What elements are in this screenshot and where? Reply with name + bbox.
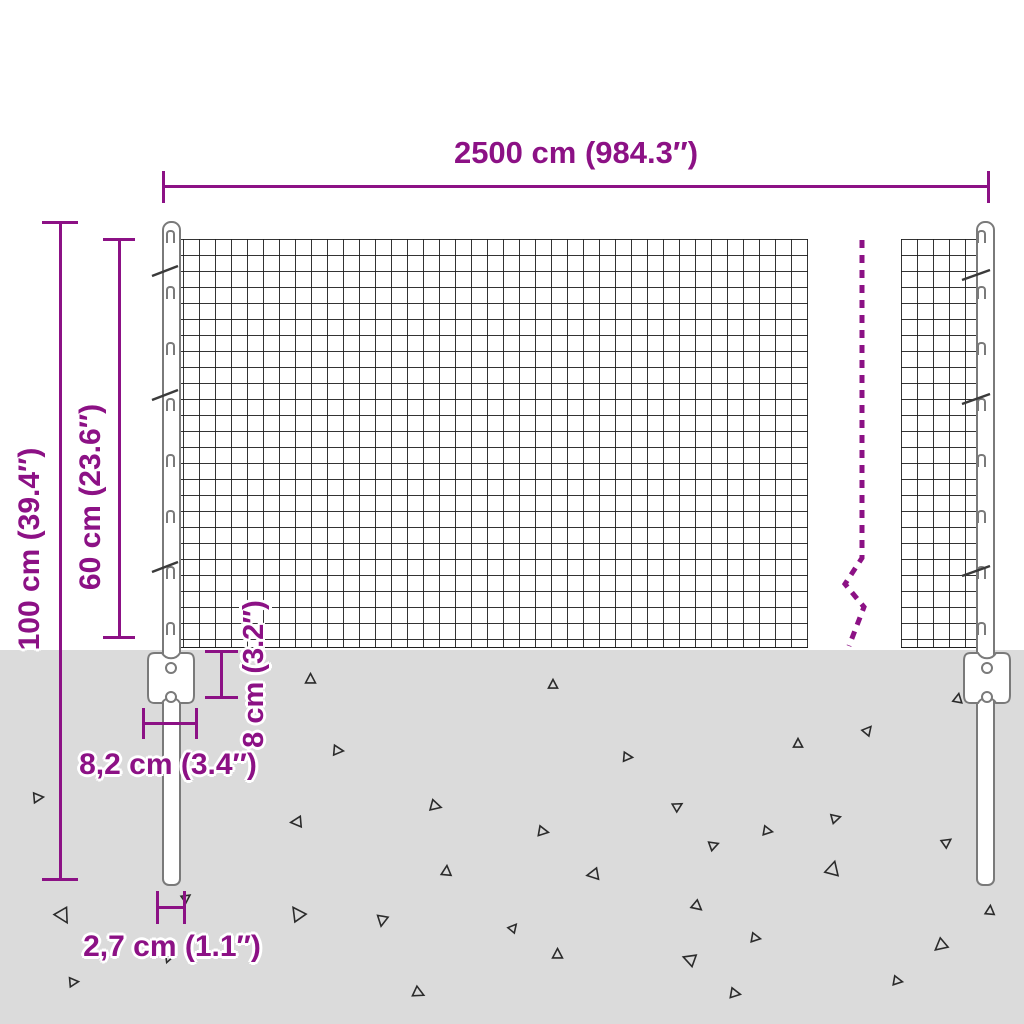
ground-triangle: [439, 863, 453, 877]
ground-triangle: [929, 935, 952, 958]
mesh-clip: [977, 398, 986, 411]
ground-triangle: [706, 837, 721, 852]
ground-triangle: [583, 865, 600, 882]
dimension-bracket-width-cap-right: [195, 708, 198, 739]
ground-triangle: [331, 743, 345, 757]
dimension-bracket-width-label: 8,2 cm (3.4″): [8, 746, 328, 784]
mesh-clip: [977, 566, 986, 579]
ground-triangle: [983, 903, 996, 916]
ground-triangle: [535, 823, 550, 838]
mesh-clip: [166, 398, 175, 411]
ground-triangle: [31, 790, 45, 804]
mesh-clip: [166, 454, 175, 467]
dimension-post-diameter-label: 2,7 cm (1.1″): [12, 928, 332, 966]
fence-dimension-diagram: 2500 cm (984.3″) 100 cm (39.4″) 60 cm (2…: [0, 0, 1024, 1024]
ground-triangle: [427, 797, 444, 814]
fence-post-right: [976, 221, 995, 886]
ground-triangle: [547, 678, 559, 690]
dimension-mesh-height-cap-top: [103, 238, 135, 241]
ground-triangle: [891, 974, 905, 988]
dimension-post-diameter-line: [157, 906, 185, 909]
mesh-clip: [166, 230, 175, 243]
ground-triangle: [951, 691, 965, 705]
ground-triangle: [688, 897, 706, 915]
ground-triangle: [288, 814, 303, 829]
ground-triangle: [621, 750, 634, 763]
mesh-clip: [166, 286, 175, 299]
mesh-clip: [166, 622, 175, 635]
fence-post-left: [162, 221, 181, 886]
ground-triangle: [670, 798, 686, 814]
mesh-clip: [166, 566, 175, 579]
ground-triangle: [374, 913, 390, 929]
ground-triangle: [505, 919, 520, 934]
dimension-total-height-cap-bottom: [42, 878, 78, 881]
mesh-clip: [977, 622, 986, 635]
dimension-total-height-label: 100 cm (39.4″): [11, 389, 49, 709]
dimension-bracket-height-cap-top: [205, 650, 238, 653]
mesh-clip: [166, 510, 175, 523]
ground-triangle: [551, 947, 564, 960]
dimension-bracket-height-cap-bottom: [205, 696, 238, 699]
ground-triangle: [829, 811, 844, 826]
dimension-width-label: 2500 cm (984.3″): [376, 134, 776, 172]
ground-triangle: [178, 889, 193, 904]
dimension-bracket-height-line: [220, 652, 223, 699]
dimension-bracket-width-cap-left: [142, 708, 145, 739]
mesh-clip: [977, 510, 986, 523]
dimension-width-cap-right: [987, 171, 990, 203]
mesh-clip: [977, 230, 986, 243]
dimension-width-cap-left: [162, 171, 165, 203]
ground-triangle: [410, 984, 429, 1003]
ground-triangle: [50, 903, 76, 929]
mesh-clip: [977, 286, 986, 299]
dimension-bracket-width-line: [143, 722, 198, 725]
ground-triangle: [727, 985, 742, 1000]
dimension-total-height-cap-top: [42, 221, 78, 224]
dimension-mesh-height-label: 60 cm (23.6″): [72, 337, 110, 657]
dimension-width-line: [162, 185, 990, 188]
mesh-clip: [166, 342, 175, 355]
ground-triangle: [860, 722, 877, 739]
ground-triangle: [67, 975, 80, 988]
ground-triangle: [679, 949, 700, 970]
ground-triangle: [284, 900, 309, 925]
mesh-clip: [977, 342, 986, 355]
dimension-mesh-height-line: [118, 239, 121, 639]
ground-triangle: [792, 737, 804, 749]
ground-triangle: [304, 672, 317, 685]
ground-triangle: [761, 824, 775, 838]
mesh-clip: [977, 454, 986, 467]
ground-triangle: [939, 834, 956, 851]
ground-triangle: [749, 931, 763, 945]
ground-triangle: [822, 857, 844, 879]
